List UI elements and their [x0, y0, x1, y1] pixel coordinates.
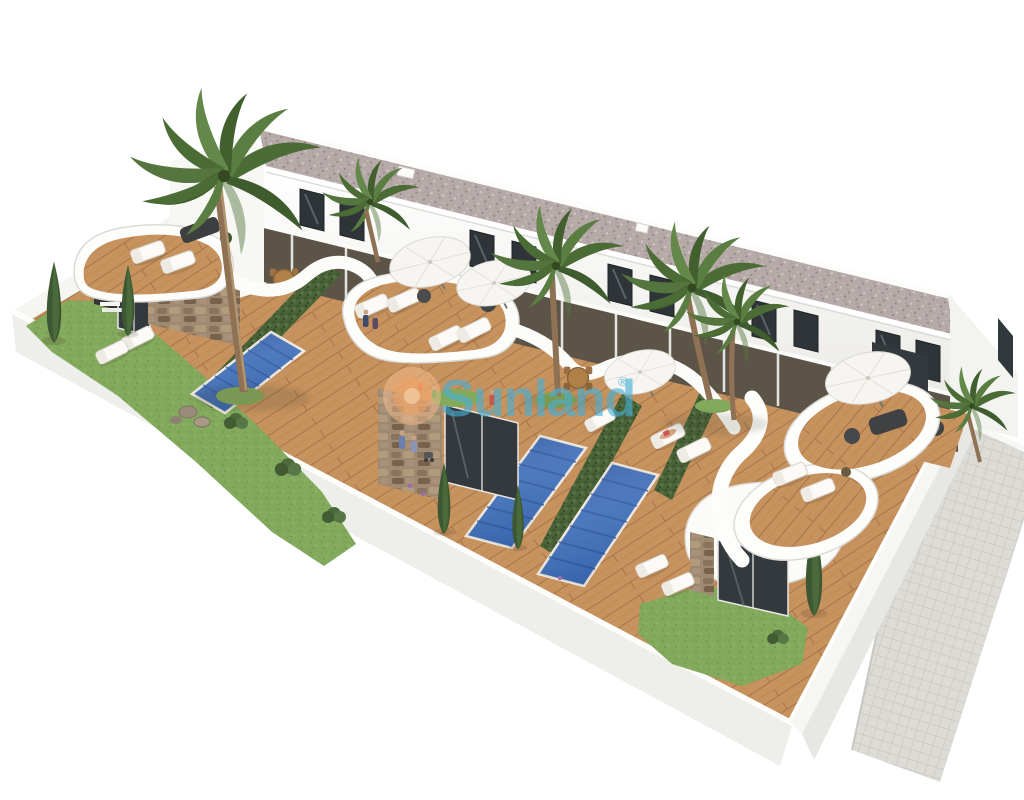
render-canvas: Aerial 3D architectural rendering of a m…: [0, 0, 1024, 800]
armchair: [844, 428, 860, 444]
watermark-text: Sunland: [440, 370, 635, 428]
watermark: Sunland ®: [383, 367, 635, 428]
side-table: [841, 467, 851, 477]
beanbag: [417, 289, 431, 303]
watermark-registered-icon: ®: [618, 374, 628, 389]
watermark-sun-icon: [383, 367, 441, 425]
architectural-render: Aerial 3D architectural rendering of a m…: [0, 0, 1024, 800]
